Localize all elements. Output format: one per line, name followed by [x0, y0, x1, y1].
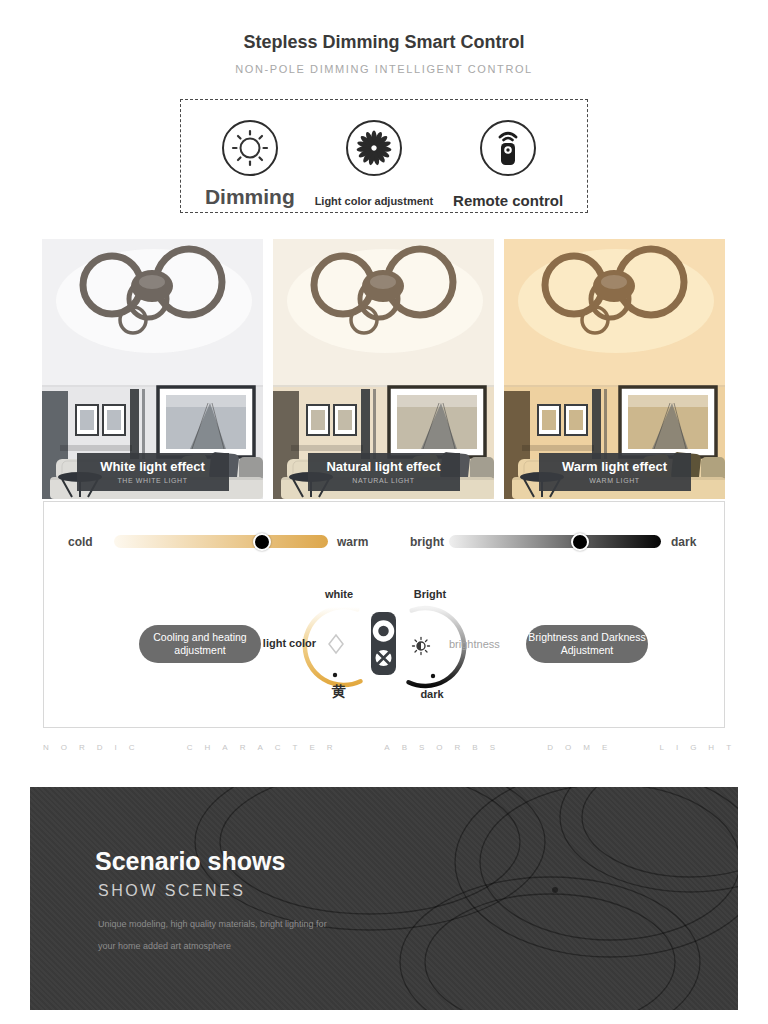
feature-label-remote: Remote control — [453, 192, 563, 209]
brightness-darkness-line2: Adjustment — [561, 644, 614, 657]
brightness-slider-knob[interactable] — [571, 533, 589, 551]
feature-light-color: Light color adjustment — [315, 120, 434, 207]
cooling-heating-line2: adjustment — [174, 644, 225, 657]
feature-remote: Remote control — [453, 120, 563, 209]
effect-card-natural: Natural light effect NATURAL LIGHT — [273, 239, 494, 499]
control-panel: cold warm bright dark — [43, 501, 725, 728]
sun-icon — [222, 120, 278, 176]
dial-white-label: white — [325, 588, 353, 600]
dial-dark-label: dark — [420, 688, 443, 700]
scenario-subtitle: SHOW SCENES — [98, 882, 246, 900]
scenario-description-line2: your home added art atmosphere — [98, 935, 327, 957]
feature-box: Dimming — [180, 99, 588, 213]
color-temperature-slider[interactable] — [114, 535, 328, 548]
scenario-title: Scenario shows — [95, 847, 285, 876]
feature-label-dimming: Dimming — [205, 185, 295, 209]
header: Stepless Dimming Smart Control NON-POLE … — [0, 0, 768, 75]
effect-card-warm: Warm light effect WARM LIGHT — [504, 239, 725, 499]
effect-label-white: White light effect THE WHITE LIGHT — [77, 453, 229, 491]
bright-label: bright — [410, 535, 444, 549]
dial-brightness-label: brightness — [449, 638, 500, 650]
product-page: Stepless Dimming Smart Control NON-POLE … — [0, 0, 768, 1024]
dial-yellow-label: 黄 — [332, 683, 346, 701]
dark-label: dark — [671, 535, 696, 549]
effect-label-natural: Natural light effect NATURAL LIGHT — [308, 453, 460, 491]
page-title: Stepless Dimming Smart Control — [0, 32, 768, 53]
color-slider-knob[interactable] — [253, 533, 271, 551]
scenario-description-line1: Unique modeling, high quality materials,… — [98, 913, 327, 935]
brightness-arc-dot — [431, 674, 435, 678]
dial-bright-label: Bright — [414, 588, 446, 600]
scenario-section: Scenario shows SHOW SCENES Unique modeli… — [30, 787, 738, 1010]
warm-label: warm — [337, 535, 368, 549]
brightness-darkness-button[interactable]: Brightness and Darkness Adjustment — [526, 625, 648, 663]
feature-label-light-color: Light color adjustment — [315, 195, 434, 207]
remote-ring-button — [376, 623, 392, 639]
brightness-slider[interactable] — [449, 535, 661, 548]
effect-subtitle: WARM LIGHT — [541, 477, 689, 484]
light-effect-gallery: White light effect THE WHITE LIGHT — [42, 239, 726, 499]
cold-label: cold — [68, 535, 93, 549]
brightness-sun-icon — [413, 638, 430, 655]
remote-dial-graphic — [265, 582, 505, 727]
brightness-darkness-line1: Brightness and Darkness — [528, 631, 645, 644]
feature-dimming: Dimming — [205, 120, 295, 209]
remote-icon — [480, 120, 536, 176]
fan-icon — [346, 120, 402, 176]
light-color-arc-dot — [333, 673, 337, 677]
page-subtitle: NON-POLE DIMMING INTELLIGENT CONTROL — [0, 63, 768, 75]
effect-title: White light effect — [79, 459, 227, 474]
effect-subtitle: THE WHITE LIGHT — [79, 477, 227, 484]
effect-title: Natural light effect — [310, 459, 458, 474]
cooling-heating-button[interactable]: Cooling and heating adjustment — [139, 625, 261, 663]
scenario-description: Unique modeling, high quality materials,… — [98, 913, 327, 957]
effect-card-white: White light effect THE WHITE LIGHT — [42, 239, 263, 499]
nordic-caption: NORDIC CHARACTER ABSORBS DOME LIGHT — [43, 743, 768, 752]
cooling-heating-line1: Cooling and heating — [153, 631, 246, 644]
effect-label-warm: Warm light effect WARM LIGHT — [539, 453, 691, 491]
effect-title: Warm light effect — [541, 459, 689, 474]
diamond-icon — [329, 635, 343, 653]
effect-subtitle: NATURAL LIGHT — [310, 477, 458, 484]
